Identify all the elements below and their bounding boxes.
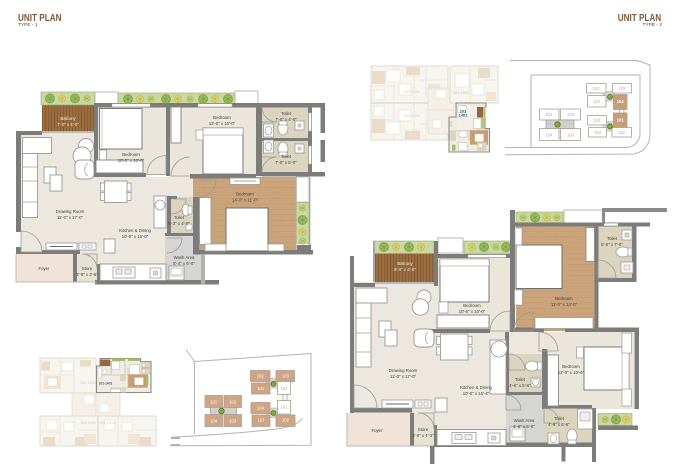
svg-text:Bedroom: Bedroom bbox=[562, 364, 580, 369]
svg-text:103: 103 bbox=[619, 86, 627, 91]
svg-text:Bedroom: Bedroom bbox=[213, 115, 231, 120]
svg-text:UNIT PLAN: UNIT PLAN bbox=[18, 13, 62, 24]
svg-text:203-1403: 203-1403 bbox=[453, 91, 468, 95]
svg-text:102: 102 bbox=[282, 418, 290, 423]
svg-text:Bedroom: Bedroom bbox=[555, 296, 573, 301]
svg-text:1401: 1401 bbox=[459, 113, 468, 118]
svg-text:Store: Store bbox=[418, 427, 429, 432]
svg-text:11'-0" x 17'-0": 11'-0" x 17'-0" bbox=[57, 215, 84, 220]
svg-text:203-1403: 203-1403 bbox=[99, 421, 114, 425]
svg-text:Toilet: Toilet bbox=[607, 236, 618, 241]
svg-text:102: 102 bbox=[257, 374, 265, 379]
svg-text:104: 104 bbox=[594, 118, 602, 123]
svg-text:Wash Area: Wash Area bbox=[514, 418, 535, 423]
svg-text:102: 102 bbox=[567, 112, 575, 117]
svg-text:7'-0" x 4'-0": 7'-0" x 4'-0" bbox=[275, 117, 297, 122]
svg-text:101: 101 bbox=[210, 400, 218, 405]
svg-text:Toilet: Toilet bbox=[174, 215, 185, 220]
svg-text:Foyer: Foyer bbox=[39, 266, 51, 271]
svg-text:Bedroom: Bedroom bbox=[236, 192, 254, 197]
svg-text:8'-0" x 4'-0": 8'-0" x 4'-0" bbox=[394, 267, 416, 272]
svg-text:Bedroom: Bedroom bbox=[122, 152, 140, 157]
svg-text:201-1401: 201-1401 bbox=[404, 90, 419, 94]
svg-text:201-1401: 201-1401 bbox=[99, 380, 113, 385]
svg-text:103: 103 bbox=[229, 419, 237, 424]
svg-text:10'-0" x 10'-0": 10'-0" x 10'-0" bbox=[118, 158, 145, 163]
svg-text:101: 101 bbox=[546, 112, 554, 117]
svg-text:13'-0" x 10'-0": 13'-0" x 10'-0" bbox=[209, 121, 236, 126]
svg-text:104: 104 bbox=[617, 99, 625, 104]
svg-text:10'-0" x 15'-0": 10'-0" x 15'-0" bbox=[122, 234, 149, 239]
svg-text:101: 101 bbox=[593, 99, 601, 104]
svg-text:104: 104 bbox=[210, 419, 218, 424]
svg-text:204-1404: 204-1404 bbox=[80, 421, 95, 425]
svg-text:12'-0" x 10'-6": 12'-0" x 10'-6" bbox=[558, 370, 585, 375]
svg-text:TYPE - 2: TYPE - 2 bbox=[643, 22, 663, 28]
svg-text:5'-3" x 4'-0": 5'-3" x 4'-0" bbox=[168, 221, 190, 226]
svg-text:Toilet: Toilet bbox=[281, 111, 292, 116]
svg-text:TYPE - 1: TYPE - 1 bbox=[18, 22, 38, 28]
svg-text:7'-0" x 4'-0": 7'-0" x 4'-0" bbox=[57, 122, 79, 127]
svg-text:4'-6" x 6'-6": 4'-6" x 6'-6" bbox=[548, 422, 570, 427]
svg-text:UNIT PLAN: UNIT PLAN bbox=[618, 13, 662, 24]
svg-text:Balcony: Balcony bbox=[60, 116, 76, 121]
svg-text:10'-0" x 15'-4": 10'-0" x 15'-4" bbox=[463, 391, 490, 396]
svg-text:103: 103 bbox=[567, 133, 575, 138]
svg-text:Toilet: Toilet bbox=[515, 377, 526, 382]
svg-text:3'-8" x 3'-6": 3'-8" x 3'-6" bbox=[76, 272, 98, 277]
svg-text:104: 104 bbox=[257, 406, 265, 411]
svg-text:101: 101 bbox=[257, 386, 265, 391]
svg-text:103: 103 bbox=[282, 374, 290, 379]
svg-text:4'-6" x 5'-6": 4'-6" x 5'-6" bbox=[509, 383, 531, 388]
svg-text:Kitchen & Dining: Kitchen & Dining bbox=[119, 228, 151, 233]
svg-text:Foyer: Foyer bbox=[372, 428, 384, 433]
svg-text:Drawing Room: Drawing Room bbox=[56, 209, 85, 214]
svg-text:Toilet: Toilet bbox=[281, 154, 292, 159]
svg-text:Balcony: Balcony bbox=[397, 261, 413, 266]
svg-text:202-1402: 202-1402 bbox=[80, 381, 95, 385]
svg-text:5'-0" x 7'-0": 5'-0" x 7'-0" bbox=[601, 242, 623, 247]
svg-text:11'-0" x 14'-0": 11'-0" x 14'-0" bbox=[551, 302, 578, 307]
svg-text:Drawing Room: Drawing Room bbox=[389, 368, 418, 373]
svg-text:102: 102 bbox=[229, 400, 237, 405]
svg-text:Toilet: Toilet bbox=[554, 416, 565, 421]
svg-text:103: 103 bbox=[258, 418, 266, 423]
svg-text:3'-0" x 4'-3": 3'-0" x 4'-3" bbox=[412, 433, 434, 438]
svg-text:101: 101 bbox=[617, 117, 625, 122]
svg-text:5'-4" x 6'-0": 5'-4" x 6'-0" bbox=[173, 261, 195, 266]
svg-text:7'-0" x 5'-0": 7'-0" x 5'-0" bbox=[275, 160, 297, 165]
svg-text:102: 102 bbox=[618, 130, 626, 135]
svg-text:202-1402: 202-1402 bbox=[404, 114, 419, 118]
svg-text:104: 104 bbox=[546, 133, 554, 138]
svg-text:10'-6" x 10'-0": 10'-6" x 10'-0" bbox=[459, 309, 486, 314]
svg-text:14'-0" x 11'-0": 14'-0" x 11'-0" bbox=[232, 198, 259, 203]
svg-text:4'-6" x 6'-6": 4'-6" x 6'-6" bbox=[513, 424, 535, 429]
svg-text:11'-0" x 17'-0": 11'-0" x 17'-0" bbox=[390, 374, 417, 379]
svg-text:102: 102 bbox=[593, 86, 601, 91]
svg-text:101: 101 bbox=[281, 405, 289, 410]
svg-text:104: 104 bbox=[281, 386, 289, 391]
svg-text:103: 103 bbox=[594, 130, 602, 135]
svg-text:Store: Store bbox=[82, 266, 93, 271]
svg-text:Kitchen & Dining: Kitchen & Dining bbox=[460, 385, 492, 390]
svg-text:Wash Area: Wash Area bbox=[174, 255, 195, 260]
svg-text:Bedroom: Bedroom bbox=[463, 303, 481, 308]
